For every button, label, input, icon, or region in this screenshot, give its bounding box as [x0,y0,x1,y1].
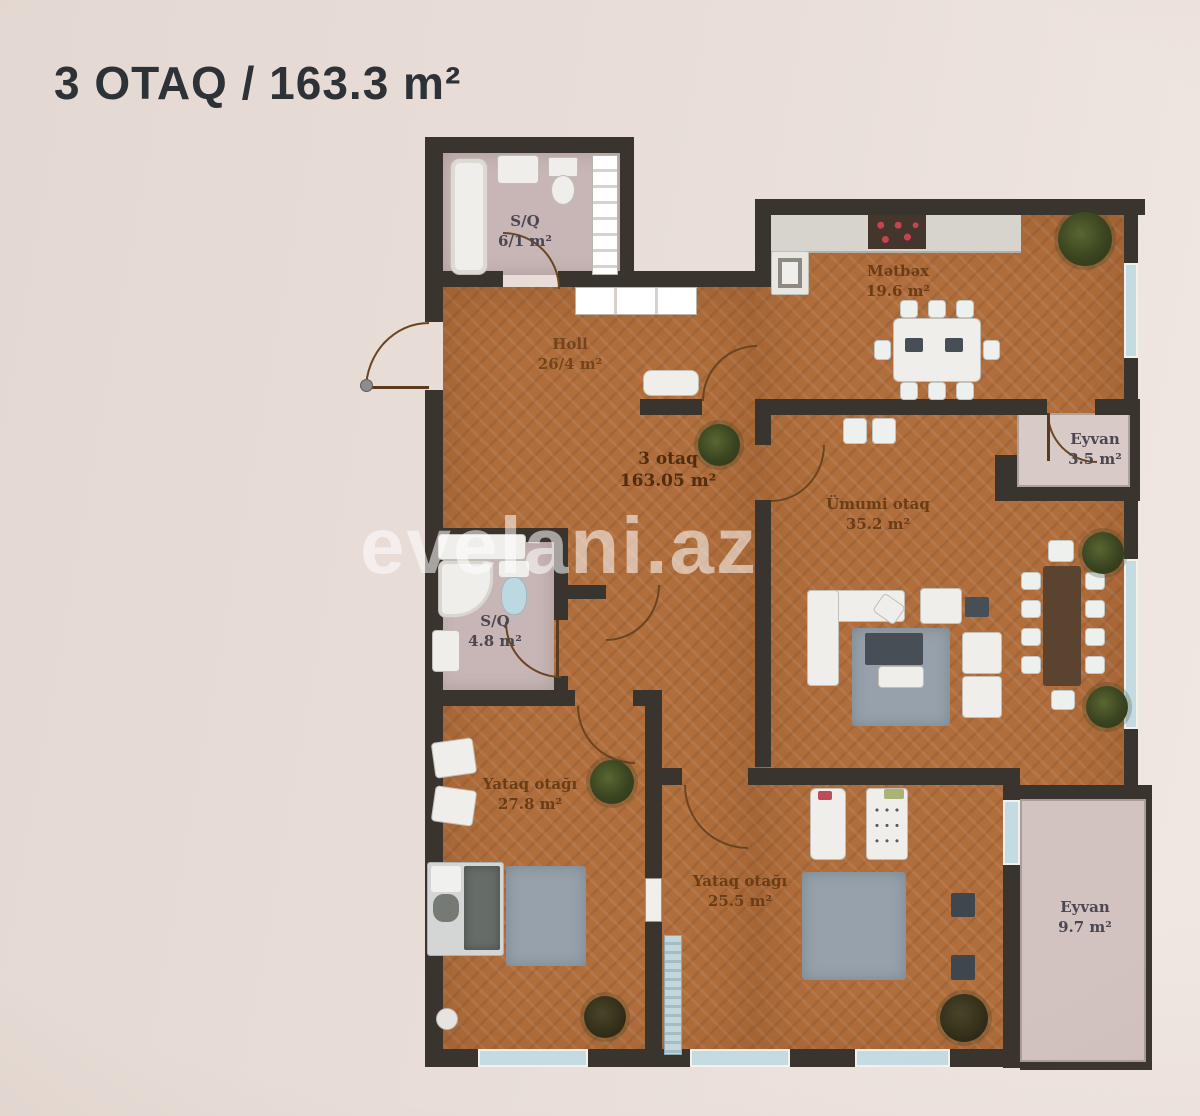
room-name: Ümumi otaq [808,495,948,515]
chair [872,418,896,444]
room-name: Yataq otağı [670,872,810,892]
wall [645,690,662,878]
table-decor [905,338,923,352]
radiator [664,935,682,1055]
wall [620,137,634,287]
chair [1021,628,1041,646]
entrance-door-leaf [365,386,429,389]
chair [1085,572,1105,590]
wall [755,215,771,287]
wall [1124,729,1138,789]
bedroom1-rug [506,866,586,966]
armchair [920,588,962,624]
stool [951,955,975,980]
chair [843,418,867,444]
chair [983,340,1000,360]
watermark: evelani.az [360,500,758,592]
wall [1003,785,1020,800]
floorplan-page: 3 OTAQ / 163.3 m² [0,0,1200,1116]
door-leaf [556,620,559,676]
window-bedroom2-a [690,1049,790,1067]
chair [956,300,974,318]
unit-label: 3 otaq 163.05 m² [608,448,728,492]
wall [748,768,1020,785]
room-label-balcony-large: Eyvan 9.7 m² [1025,898,1145,937]
bed-print [433,894,459,922]
unit-area: 163.05 m² [608,470,728,492]
room-name: Eyvan [1040,430,1150,450]
chair [956,382,974,400]
chair [1051,690,1075,710]
wall [425,390,443,1065]
chair [900,300,918,318]
toilet-bowl [551,175,575,205]
hall-bench [643,370,699,396]
chair [900,382,918,400]
room-label-balcony-small: Eyvan 3.5 m² [1040,430,1150,469]
coffee-table [878,666,924,688]
chair [1085,656,1105,674]
wall [1124,215,1138,263]
bed-pillow [431,866,461,892]
bathroom-cabinet [592,155,618,275]
dining-table-long [1043,566,1081,686]
armchair [431,737,478,778]
side-table [965,597,989,617]
plant-icon [1058,212,1112,266]
room-name: Mətbəx [838,262,958,282]
room-area: 9.7 m² [1025,918,1145,938]
room-area: 25.5 m² [670,892,810,912]
window-bedroom1 [478,1049,588,1067]
window-bedroom2-b [855,1049,950,1067]
chair [1085,628,1105,646]
unit-name: 3 otaq [608,448,728,470]
toilet [548,157,578,177]
wall [1146,785,1152,1070]
chair [1021,572,1041,590]
stove [868,215,926,249]
chair [1085,600,1105,618]
room-label-bedroom2: Yataq otağı 25.5 m² [670,872,810,911]
room-label-bathroom-top: S/Q 6/1 m² [465,212,585,251]
chair [874,340,891,360]
kitchen-sink [771,251,809,295]
chair [928,382,946,400]
entrance-door-knob [360,379,373,392]
window-kitchen [1124,263,1138,358]
room-area: 26/4 m² [505,355,635,375]
wall [430,690,575,706]
room-area: 35.2 m² [808,515,948,535]
room-area: 3.5 m² [1040,450,1150,470]
room-area: 4.8 m² [440,632,550,652]
bed-blanket [464,866,500,950]
tv-stand [865,633,923,665]
plant-icon [940,994,988,1042]
room-name: Yataq otağı [460,775,600,795]
chair [928,300,946,318]
plant-icon [1086,686,1128,728]
wall [755,399,1047,415]
plant-icon [584,996,626,1038]
wall [425,287,443,322]
table-decor [945,338,963,352]
room-label-living: Ümumi otaq 35.2 m² [808,495,948,534]
stool [436,1008,458,1030]
room-name: Holl [505,335,635,355]
wall [1124,501,1138,559]
chair [1021,600,1041,618]
armchair [962,676,1002,718]
wall [1020,1062,1152,1070]
wall [645,922,662,1065]
wardrobe [575,287,697,315]
chair [1048,540,1074,562]
wall [425,137,443,287]
crib-mark [818,791,832,800]
room-name: S/Q [440,612,550,632]
room-area: 19.6 m² [838,282,958,302]
wall [1020,785,1146,799]
wall [1003,865,1020,1068]
bedroom2-rug [802,872,906,980]
room-area: 6/1 m² [465,232,585,252]
pocket-door-bedroom1 [645,878,662,922]
stool [951,893,975,917]
sink [497,155,539,184]
armchair [962,632,1002,674]
room-label-bedroom1: Yataq otağı 27.8 m² [460,775,600,814]
wall [755,415,771,445]
room-label-hall: Holl 26/4 m² [505,335,635,374]
chair [1021,656,1041,674]
room-area: 27.8 m² [460,795,600,815]
room-name: S/Q [465,212,585,232]
plan-title: 3 OTAQ / 163.3 m² [54,56,461,110]
wall [558,271,778,287]
window-balcony-large [1003,800,1020,865]
wall [662,768,682,785]
dresser-top [884,789,904,799]
wall [425,137,634,153]
wall [640,399,702,415]
entrance-door-arc [365,322,429,390]
room-label-bathroom-small: S/Q 4.8 m² [440,612,550,651]
room-label-kitchen: Mətbəx 19.6 m² [838,262,958,301]
wall [995,487,1140,501]
plant-icon [1082,532,1124,574]
sofa-l-side [807,590,839,686]
room-name: Eyvan [1025,898,1145,918]
